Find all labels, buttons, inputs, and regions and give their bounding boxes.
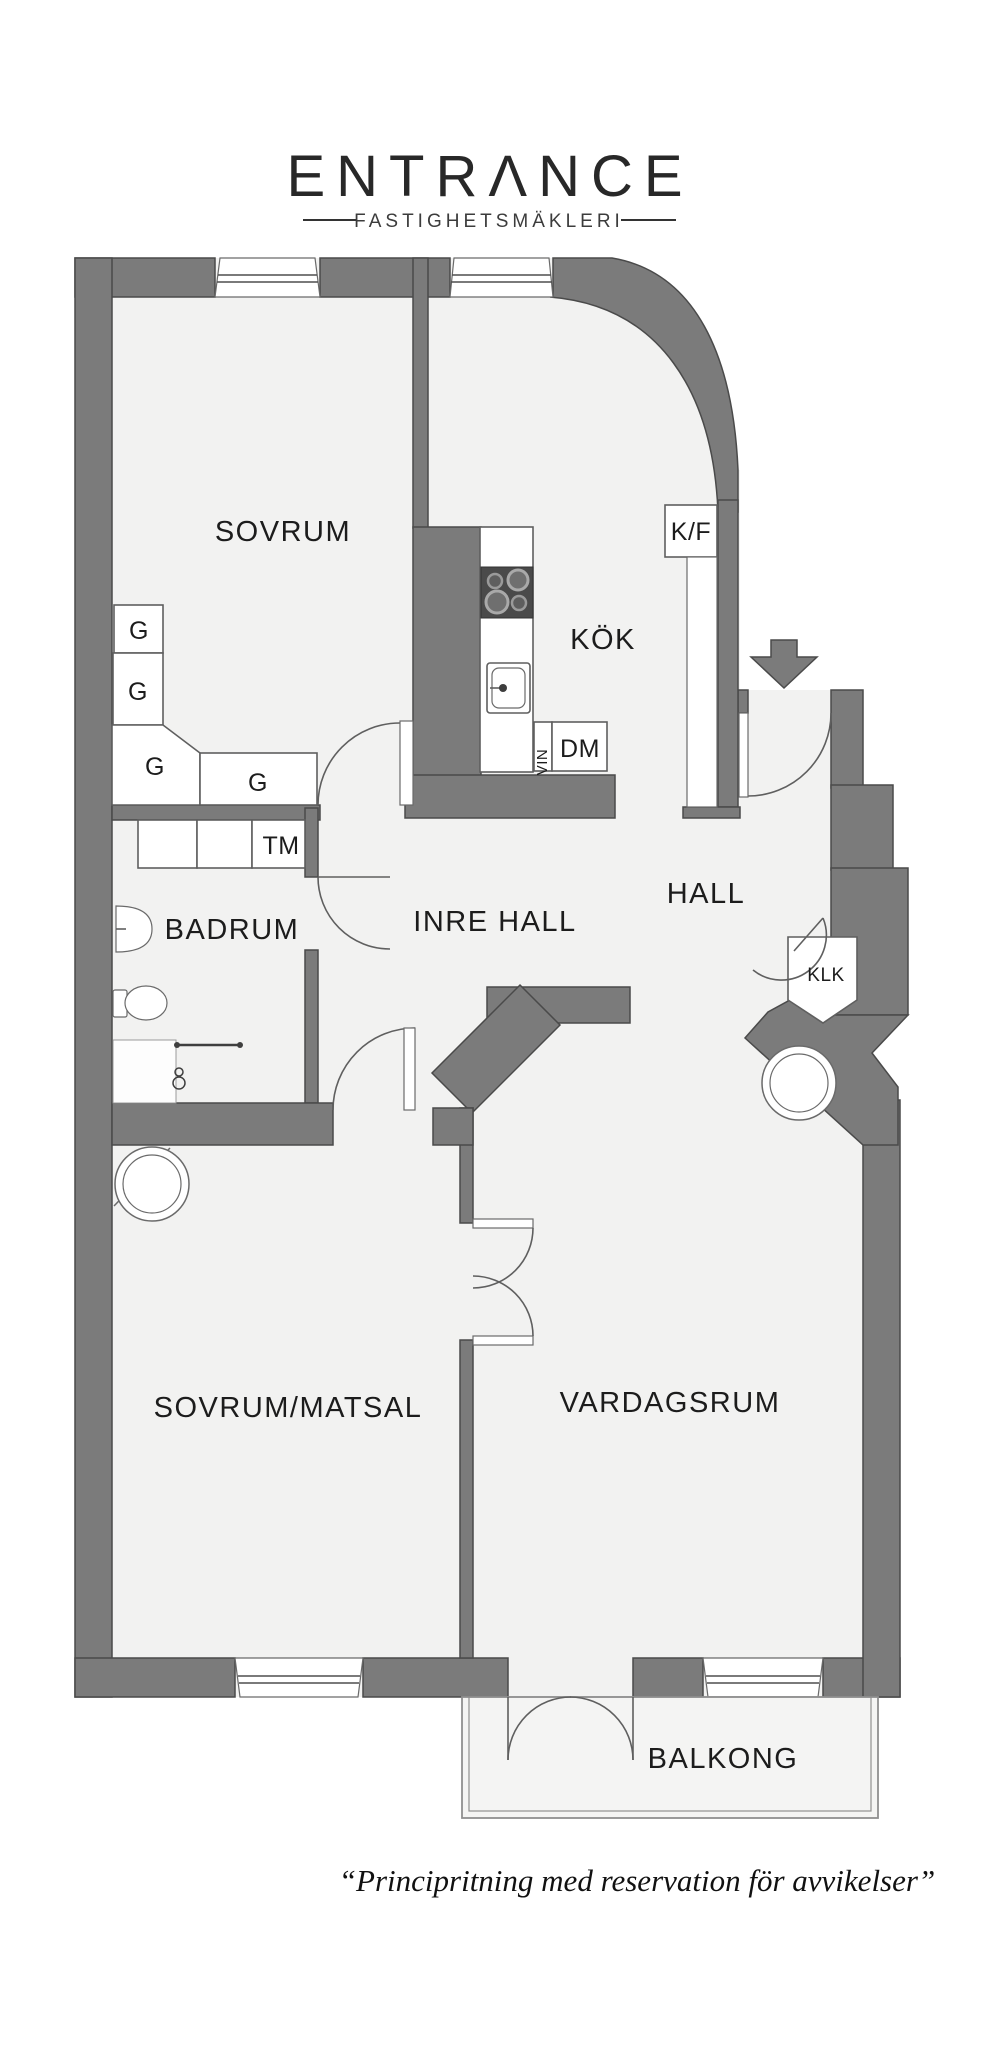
wall-right-lower (863, 1100, 900, 1697)
room-label-badrum: BADRUM (165, 914, 300, 946)
room-label-kok: KÖK (570, 624, 636, 656)
burner-icon (508, 570, 528, 590)
label-klk: KLK (807, 965, 844, 986)
wall-kok-hall (718, 500, 738, 807)
label-wardrobe-1: G (129, 617, 149, 645)
label-wardrobe-2: G (128, 678, 148, 706)
kitchen-counter (480, 527, 533, 772)
brand-wordmark: ENTRΛNCE (286, 144, 693, 209)
room-label-sovrum: SOVRUM (215, 516, 351, 548)
double-door-leaf-top (473, 1219, 533, 1228)
wall-right-entry (831, 690, 863, 788)
tiled-stove-vardagsrum (762, 1046, 836, 1120)
room-label-hall: HALL (667, 878, 746, 910)
double-door-leaf-bottom (473, 1336, 533, 1345)
burner-icon (488, 574, 502, 588)
door-leaf-sovrum-matsal (404, 1028, 415, 1110)
tiled-stove-matsal (115, 1147, 189, 1221)
entrance-arrow-icon (751, 640, 817, 688)
label-wardrobe-4: G (248, 769, 268, 797)
wall-kok-south (405, 775, 615, 818)
room-label-vardagsrum: VARDAGSRUM (560, 1387, 781, 1419)
shower-area (113, 1040, 176, 1103)
bathroom-cabinet-2 (197, 820, 252, 868)
door-leaf-entry (739, 713, 748, 797)
burner-icon (512, 596, 526, 610)
burner-icon (486, 591, 508, 613)
wall-bottom-1 (75, 1658, 235, 1697)
window-kok (450, 258, 553, 297)
towel-rail-end (174, 1042, 180, 1048)
label-wine-fridge: VIN (534, 749, 551, 776)
bathroom-cabinet-1 (138, 820, 197, 868)
brand-tagline: FASTIGHETSMÄKLERI (354, 211, 624, 232)
label-fridge-freezer: K/F (671, 518, 711, 546)
label-wardrobe-3: G (145, 753, 165, 781)
faucet-icon (499, 684, 507, 692)
window-sovrum-matsal (235, 1658, 363, 1697)
wall-badrum-east-2 (305, 950, 318, 1103)
wall-divider-lower (460, 1340, 473, 1658)
wall-divider-head (433, 1108, 473, 1145)
towel-rail-end (237, 1042, 243, 1048)
label-washing-machine: TM (262, 832, 299, 860)
wall-right-step-1 (831, 785, 893, 870)
room-label-balkong: BALKONG (648, 1743, 799, 1775)
wall-badrum-east-1 (305, 808, 318, 877)
wall-kok-block (413, 527, 481, 805)
window-vardagsrum (703, 1658, 823, 1697)
wall-top-2 (320, 258, 450, 297)
logo: ENTRΛNCE FASTIGHETSMÄKLERI (286, 144, 693, 232)
kitchen-tall-cabinet (687, 557, 717, 807)
door-leaf-sovrum (400, 721, 413, 805)
floor-main (75, 258, 740, 1697)
wall-bottom-2 (363, 1658, 508, 1697)
wall-sovrum-kok (413, 258, 428, 528)
wall-badrum-south (112, 1103, 333, 1145)
room-label-sovrum-matsal: SOVRUM/MATSAL (154, 1392, 423, 1424)
balcony-door-opening (509, 1659, 632, 1696)
room-label-inre-hall: INRE HALL (413, 906, 576, 938)
wall-left (75, 258, 112, 1697)
wall-bottom-3 (633, 1658, 703, 1697)
wall-kok-hall-foot (683, 807, 740, 818)
floor-plan: ENTRΛNCE FASTIGHETSMÄKLERI (0, 0, 1000, 2053)
wall-badrum-north (112, 805, 320, 820)
wall-entry-post (738, 690, 748, 713)
label-dishwasher: DM (560, 735, 600, 763)
disclaimer-text: “Principritning med reservation för avvi… (339, 1863, 935, 1898)
toilet-bowl (125, 986, 167, 1020)
window-sovrum (215, 258, 320, 297)
